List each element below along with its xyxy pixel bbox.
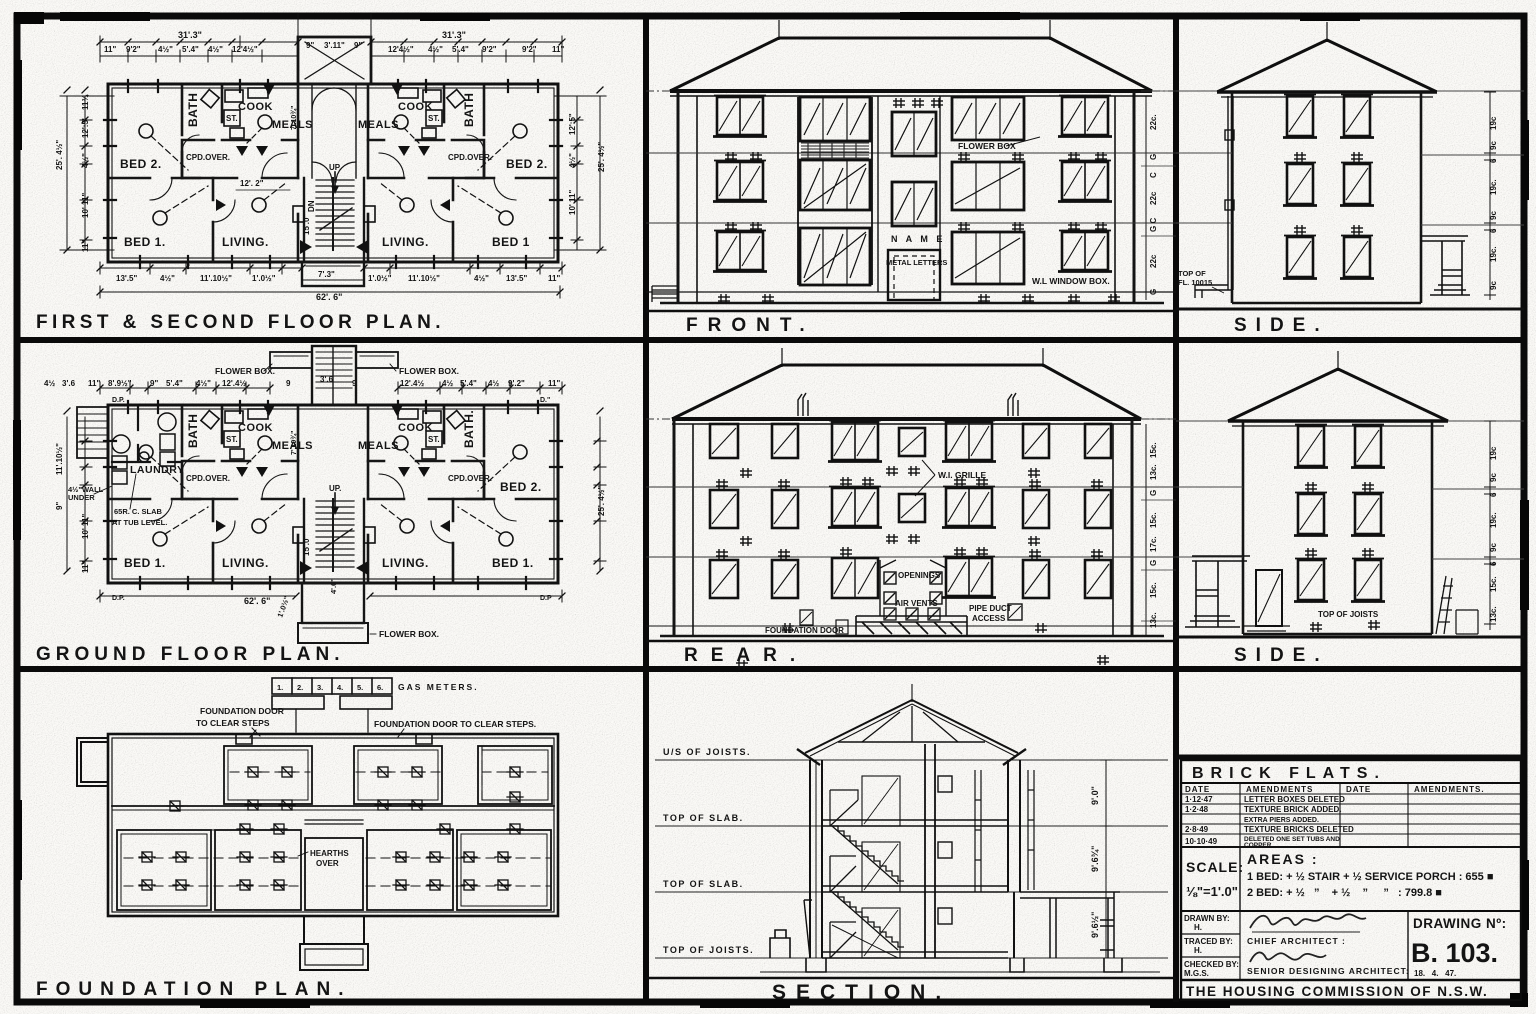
svg-text:TO CLEAR STEPS: TO CLEAR STEPS [196,718,270,728]
svg-text:22c: 22c [1149,254,1158,268]
svg-text:GAS METERS.: GAS METERS. [398,682,479,692]
svg-text:AIR VENTS: AIR VENTS [895,599,938,608]
svg-text:FOUNDATION DOOR: FOUNDATION DOOR [765,626,844,635]
svg-text:4½: 4½ [488,379,499,388]
svg-text:TOP OF: TOP OF [1178,269,1206,278]
svg-text:4'.0": 4'.0" [329,578,338,594]
svg-text:9": 9" [354,41,362,50]
svg-text:6: 6 [1489,561,1498,566]
svg-text:5'.4": 5'.4" [182,45,199,54]
svg-text:BED 2.: BED 2. [500,480,542,494]
svg-text:10' 11": 10' 11" [81,193,90,218]
svg-text:CPD.OVER.: CPD.OVER. [448,474,492,483]
svg-text:BED 1: BED 1 [492,235,530,249]
svg-text:H.: H. [1194,946,1202,955]
svg-text:SENIOR DESIGNING ARCHITECT:: SENIOR DESIGNING ARCHITECT: [1247,966,1410,976]
svg-text:CHECKED BY:: CHECKED BY: [1184,960,1239,969]
svg-text:M.G.S.: M.G.S. [1184,969,1209,978]
svg-text:HEARTHS: HEARTHS [310,849,349,858]
svg-text:10' 11": 10' 11" [81,514,90,539]
svg-text:11'.10½": 11'.10½" [55,443,64,475]
svg-text:5'.4": 5'.4" [166,379,183,388]
svg-text:6.: 6. [377,683,383,692]
svg-text:C: C [1149,172,1158,178]
svg-text:BATH.: BATH. [462,410,476,448]
svg-text:11": 11" [81,240,90,252]
svg-text:CPD.OVER.: CPD.OVER. [186,153,230,162]
svg-text:11": 11" [104,45,116,54]
svg-text:65R. C. SLAB: 65R. C. SLAB [114,507,163,516]
svg-text:62'. 6": 62'. 6" [316,292,342,302]
svg-text:13'.5": 13'.5" [506,274,527,283]
svg-text:2·8·49: 2·8·49 [1185,825,1209,834]
svg-text:UP.: UP. [329,163,341,172]
svg-text:4½": 4½" [208,45,223,54]
svg-text:SIDE.: SIDE. [1234,315,1329,336]
svg-text:ACCESS: ACCESS [972,614,1006,623]
svg-text:N A M E: N A M E [891,234,945,244]
svg-text:5.: 5. [357,683,363,692]
svg-text:TRACED BY:: TRACED BY: [1184,937,1233,946]
svg-text:1·12·47: 1·12·47 [1185,795,1213,804]
svg-text:FLOWER BOX.: FLOWER BOX. [399,366,459,376]
svg-text:LIVING.: LIVING. [382,235,429,249]
svg-text:22c: 22c [1149,191,1158,205]
svg-text:13c.: 13c. [1149,612,1158,628]
svg-text:12'.4½: 12'.4½ [222,379,246,388]
svg-text:13c.: 13c. [1489,606,1498,622]
svg-text:DATE: DATE [1346,785,1371,794]
svg-text:6: 6 [1489,492,1498,497]
svg-text:6: 6 [1489,158,1498,163]
svg-text:9'2": 9'2" [126,45,141,54]
svg-text:COOK: COOK [398,101,433,113]
svg-text:31'.3": 31'.3" [442,30,466,40]
svg-text:1·2·48: 1·2·48 [1185,805,1209,814]
svg-text:4½: 4½ [44,379,55,388]
svg-text:15c.: 15c. [1149,582,1158,598]
svg-text:FLOWER BOX.: FLOWER BOX. [379,629,439,639]
svg-text:9": 9" [55,502,64,510]
svg-text:15c.: 15c. [1149,512,1158,528]
svg-text:G C: G C [1149,218,1158,232]
svg-text:9": 9" [150,379,158,388]
svg-text:18. 4. 47.: 18. 4. 47. [1414,969,1456,978]
svg-text:BED 1.: BED 1. [124,235,166,249]
svg-text:9'2": 9'2" [482,45,497,54]
svg-text:2.: 2. [297,683,303,692]
svg-text:25'. 4½": 25'. 4½" [55,140,64,170]
svg-text:FIRST & SECOND FLOOR PLAN.: FIRST & SECOND FLOOR PLAN. [36,312,445,333]
svg-text:G: G [1149,560,1158,566]
svg-text:DRAWING Nº:: DRAWING Nº: [1413,916,1507,931]
svg-text:⅛"=1'.0": ⅛"=1'.0" [1186,884,1238,899]
svg-text:D.P.: D.P. [112,397,125,404]
svg-text:DN: DN [307,200,316,212]
svg-text:9c: 9c [1489,473,1498,482]
svg-text:11": 11" [548,274,560,283]
svg-text:11": 11" [88,379,100,388]
svg-text:BRICK FLATS.: BRICK FLATS. [1192,765,1386,782]
svg-text:9'.6½": 9'.6½" [1090,912,1100,938]
svg-text:19c.: 19c. [1489,246,1498,262]
svg-text:MEALS: MEALS [358,440,399,452]
svg-text:G: G [1149,289,1158,295]
svg-text:62'. 6": 62'. 6" [244,596,270,606]
svg-text:9": 9" [306,41,314,50]
svg-text:8'.9½": 8'.9½" [108,379,132,388]
svg-text:AMENDMENTS.: AMENDMENTS. [1414,785,1485,794]
svg-text:GROUND FLOOR PLAN.: GROUND FLOOR PLAN. [36,644,345,665]
svg-text:D.P.: D.P. [112,595,125,602]
svg-text:AMENDMENTS: AMENDMENTS [1246,785,1313,794]
svg-text:12'4½": 12'4½" [232,45,258,54]
svg-text:9: 9 [286,379,291,388]
svg-text:CHIEF ARCHITECT :: CHIEF ARCHITECT : [1247,936,1346,946]
svg-text:OVER: OVER [316,859,339,868]
svg-text:FOUNDATION DOOR: FOUNDATION DOOR [200,706,284,716]
svg-text:D.P: D.P [540,595,552,602]
svg-text:TOP OF SLAB.: TOP OF SLAB. [663,879,744,889]
svg-text:BATH: BATH [186,93,200,127]
svg-text:LIVING.: LIVING. [222,556,269,570]
svg-text:9c: 9c [1489,141,1498,150]
svg-text:15'.0": 15'.0" [302,214,311,235]
svg-text:9'.0": 9'.0" [1090,786,1100,805]
svg-text:DATE: DATE [1185,785,1210,794]
svg-text:TOP OF JOISTS: TOP OF JOISTS [1318,610,1379,619]
svg-text:FOUNDATION PLAN.: FOUNDATION PLAN. [36,979,352,1000]
svg-text:BED 2.: BED 2. [120,157,162,171]
svg-text:3'.6: 3'.6 [62,379,76,388]
svg-text:OPENINGS: OPENINGS [898,571,941,580]
svg-text:MEALS: MEALS [272,440,313,452]
svg-text:LETTER BOXES DELETED: LETTER BOXES DELETED [1244,795,1345,804]
svg-text:1.: 1. [277,683,283,692]
svg-text:ST.: ST. [428,435,440,444]
svg-text:REAR.: REAR. [684,645,808,666]
svg-text:COPPER.: COPPER. [1244,842,1273,849]
svg-text:LIVING.: LIVING. [382,556,429,570]
svg-text:4½": 4½" [158,45,173,54]
svg-text:19c: 19c [1489,116,1498,130]
svg-text:PIPE DUCT: PIPE DUCT [969,604,1012,613]
svg-text:9c: 9c [1489,211,1498,220]
svg-text:COOK: COOK [238,422,273,434]
svg-text:15c.: 15c. [1489,576,1498,592]
svg-text:19c.: 19c. [1489,179,1498,195]
svg-text:ST.: ST. [226,114,238,123]
svg-text:11": 11" [552,45,564,54]
svg-text:4½: 4½ [442,379,453,388]
svg-text:13'.5": 13'.5" [116,274,137,283]
svg-text:12'.4½: 12'.4½ [400,379,424,388]
svg-text:25'. 4½": 25'. 4½" [597,486,606,516]
svg-text:3'.6: 3'.6 [320,375,334,384]
svg-text:COOK: COOK [238,101,273,113]
svg-text:25'. 4½": 25'. 4½" [597,142,606,172]
svg-text:D.": D." [540,397,550,404]
svg-text:4½": 4½" [428,45,443,54]
svg-text:B. 103.: B. 103. [1411,938,1498,968]
svg-text:LAUNDRY: LAUNDRY [130,464,184,476]
svg-text:LIVING.: LIVING. [222,235,269,249]
svg-text:11'.10½": 11'.10½" [200,274,232,283]
svg-text:FLOWER BOX.: FLOWER BOX. [215,366,275,376]
svg-text:19c.: 19c. [1489,512,1498,528]
svg-text:G: G [1149,490,1158,496]
svg-text:15c.: 15c. [1149,442,1158,458]
svg-text:FOUNDATION DOOR TO CLEAR STEPS: FOUNDATION DOOR TO CLEAR STEPS. [374,719,536,729]
svg-text:11¾: 11¾ [81,94,90,110]
svg-text:FRONT.: FRONT. [686,315,815,336]
svg-text:DRAWN BY:: DRAWN BY: [1184,914,1230,923]
svg-text:11'.10½": 11'.10½" [408,274,440,283]
svg-text:9'.6¾": 9'.6¾" [1090,846,1100,872]
svg-text:13c.: 13c. [1149,464,1158,480]
svg-text:ST.: ST. [428,114,440,123]
svg-text:4½": 4½" [160,274,175,283]
svg-text:MEALS: MEALS [358,119,399,131]
svg-text:1'.0½": 1'.0½" [252,274,276,283]
svg-text:BATH: BATH [462,93,476,127]
svg-text:TOP OF JOISTS.: TOP OF JOISTS. [663,945,754,955]
svg-text:AREAS :: AREAS : [1247,851,1319,867]
svg-text:AT TUB LEVEL.: AT TUB LEVEL. [112,518,167,527]
svg-text:EXTRA PIERS ADDED.: EXTRA PIERS ADDED. [1244,817,1319,824]
svg-text:CPD.OVER.: CPD.OVER. [448,153,492,162]
svg-text:4½": 4½" [474,274,489,283]
svg-text:SCALE:: SCALE: [1186,859,1244,875]
svg-text:TEXTURE BRICKS DELETED: TEXTURE BRICKS DELETED [1244,825,1354,834]
svg-text:CPD.OVER.: CPD.OVER. [186,474,230,483]
svg-text:9'2": 9'2" [522,45,537,54]
svg-text:9: 9 [352,379,357,388]
svg-text:11": 11" [81,561,90,573]
svg-text:2 BED: + ½ ” + ½ ”: 2 BED: + ½ ” + ½ ” ” : 799.8 ■ [1247,887,1442,899]
svg-text:17c.: 17c. [1149,536,1158,552]
svg-text:11": 11" [548,379,560,388]
svg-text:12':5": 12':5" [568,113,577,135]
svg-text:3'.11": 3'.11" [324,41,345,50]
svg-text:METAL LETTERS: METAL LETTERS [886,258,947,267]
svg-text:22c.: 22c. [1149,114,1158,130]
svg-text:15'.0": 15'.0" [302,535,311,556]
svg-text:4.: 4. [337,683,343,692]
svg-text:3.: 3. [317,683,323,692]
svg-text:W.L WINDOW BOX.: W.L WINDOW BOX. [1032,276,1110,286]
svg-text:TEXTURE BRICK ADDED.: TEXTURE BRICK ADDED. [1244,805,1341,814]
svg-text:5'.4": 5'.4" [452,45,469,54]
svg-text:THE HOUSING COMMISSION OF N.S.: THE HOUSING COMMISSION OF N.S.W. [1186,984,1488,999]
svg-text:BED 1.: BED 1. [492,556,534,570]
svg-text:H.: H. [1194,923,1202,932]
svg-text:G: G [1149,154,1158,160]
svg-text:1 BED: + ½ STAIR + ½ SERVICE P: 1 BED: + ½ STAIR + ½ SERVICE PORCH : 655… [1247,871,1493,883]
svg-text:BED 1.: BED 1. [124,556,166,570]
svg-text:10·10·49: 10·10·49 [1185,837,1218,846]
svg-text:UP.: UP. [329,484,341,493]
svg-text:BATH: BATH [186,414,200,448]
svg-text:12'4½": 12'4½" [388,45,414,54]
svg-text:MEALS: MEALS [272,119,313,131]
svg-text:COOK: COOK [398,422,433,434]
svg-text:31'.3": 31'.3" [178,30,202,40]
svg-text:12':5': 12':5' [81,118,90,138]
svg-text:TOP OF SLAB.: TOP OF SLAB. [663,813,744,823]
svg-text:9c: 9c [1489,543,1498,552]
svg-text:U/S OF JOISTS.: U/S OF JOISTS. [663,747,751,757]
svg-text:UNDER: UNDER [68,493,95,502]
svg-text:19c: 19c [1489,446,1498,460]
svg-text:7'.3": 7'.3" [318,270,335,279]
svg-text:12'. 2": 12'. 2" [240,179,264,188]
svg-text:SIDE.: SIDE. [1234,645,1329,666]
svg-text:9c: 9c [1489,281,1498,290]
svg-text:FL. 10015: FL. 10015 [1178,278,1212,287]
svg-text:BED 2.: BED 2. [506,157,548,171]
svg-text:ST.: ST. [226,435,238,444]
svg-text:1'.0½": 1'.0½" [368,274,392,283]
svg-text:6: 6 [1489,228,1498,233]
svg-text:SECTION.: SECTION. [772,981,951,1004]
